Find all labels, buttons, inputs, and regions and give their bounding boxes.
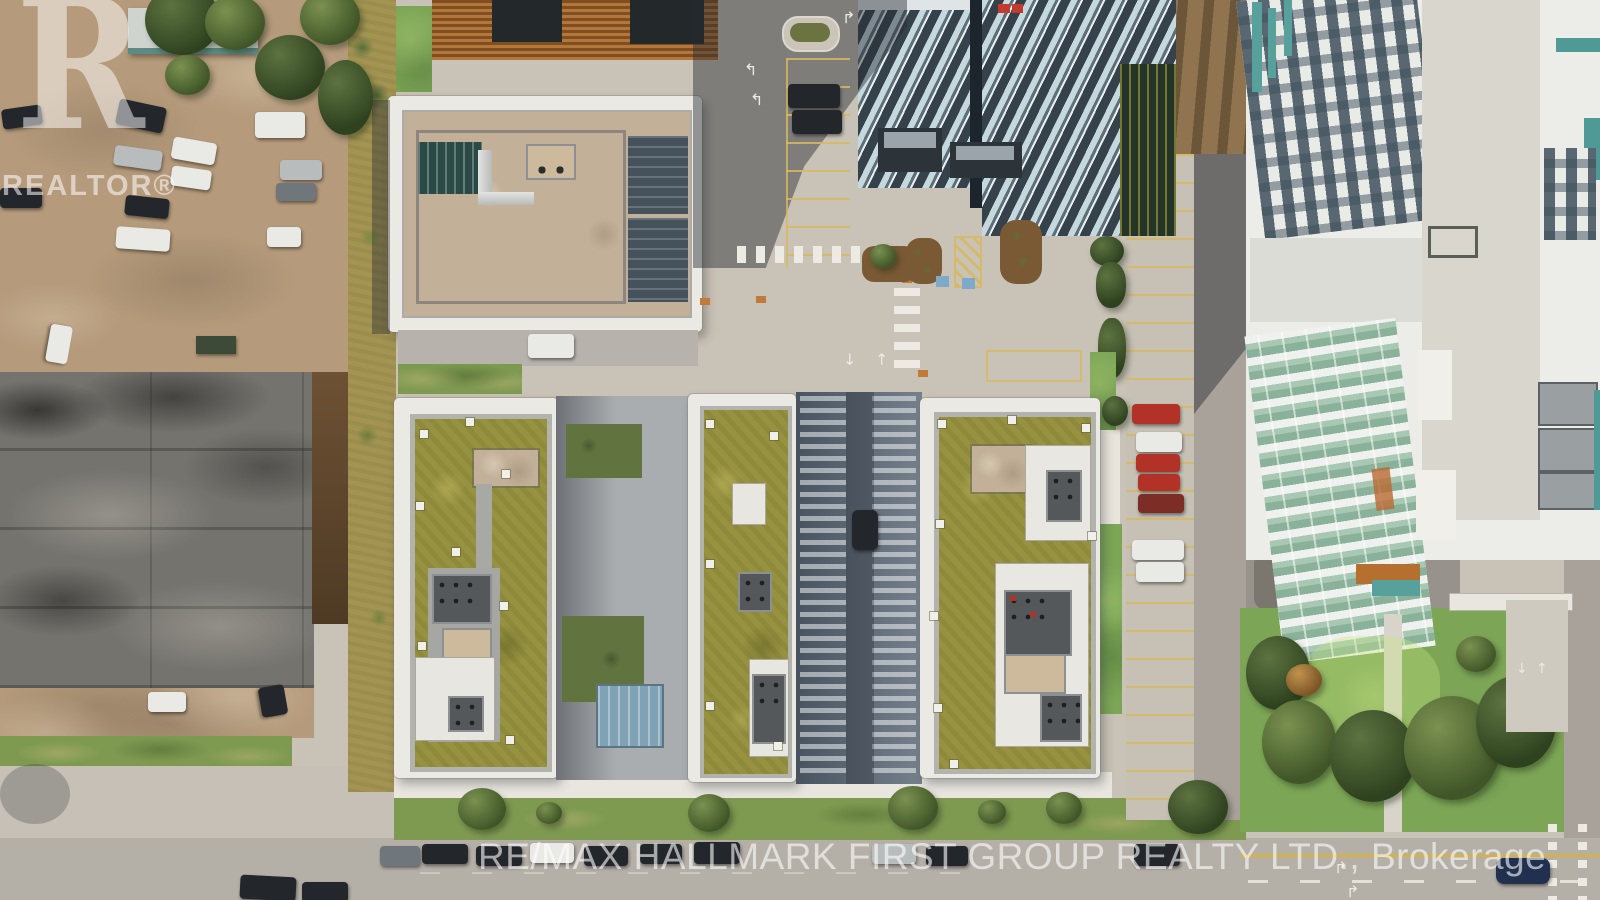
- tree: [1102, 396, 1128, 426]
- tree: [318, 60, 373, 135]
- roof-vent: [500, 602, 508, 610]
- gravel-roof-notch: [474, 450, 538, 486]
- hvac-units: [1006, 592, 1070, 654]
- dark-roof-box: [630, 0, 704, 44]
- teal-rooftop-pipes: [1284, 0, 1292, 56]
- car: [792, 110, 842, 134]
- tree: [458, 788, 506, 830]
- hvac-cluster-teal: [418, 142, 482, 194]
- silver-duct-horizontal: [478, 192, 534, 205]
- rooftop-unit-beige: [444, 630, 490, 660]
- rooftop-terrace: [1422, 0, 1540, 520]
- aerial-photo: ↰ ↰ ↱ ↓ ↑: [0, 0, 1600, 900]
- red-pipe-accent: [1010, 596, 1016, 601]
- car: [1136, 432, 1182, 452]
- gravel-roof-notch: [972, 446, 1030, 492]
- dark-green-glass-building: [1120, 64, 1176, 236]
- tactile-curb-plate: [700, 298, 710, 305]
- roof-vent: [416, 502, 424, 510]
- roof-vent: [770, 432, 778, 440]
- courtyard-garden: [566, 424, 642, 478]
- van: [528, 334, 574, 358]
- accessible-parking-mark: [936, 276, 949, 287]
- teal-pipe-run: [1594, 390, 1600, 510]
- car: [1138, 494, 1184, 513]
- laneway-centre: [846, 392, 874, 784]
- roof-vent: [466, 418, 474, 426]
- rooftop-mechanical-unit: [1540, 384, 1596, 424]
- car: [422, 844, 468, 864]
- rooftop-equipment-red: [1012, 4, 1023, 13]
- tree: [1096, 262, 1126, 308]
- planting-bed: [398, 364, 522, 394]
- tree: [1262, 700, 1336, 784]
- roof-vent: [1082, 424, 1090, 432]
- roof-vent: [930, 612, 938, 620]
- industrial-building-roof: [0, 372, 314, 690]
- canopy-roof: [956, 146, 1014, 160]
- tree: [1456, 636, 1496, 672]
- car: [380, 846, 420, 866]
- hvac-units: [740, 574, 770, 610]
- car: [148, 692, 186, 712]
- tree: [1330, 710, 1416, 802]
- teal-canopy: [1372, 580, 1420, 596]
- tree: [1286, 664, 1322, 696]
- grass-boulevard: [394, 798, 1246, 840]
- realtor-watermark-text: REALTOR®: [2, 170, 177, 203]
- bike-lane-arrow: ↓: [1516, 662, 1528, 676]
- roof-vent: [706, 702, 714, 710]
- car: [852, 510, 878, 550]
- teal-rooftop-pipes: [1252, 2, 1262, 92]
- road-arrow-marking: ↑: [875, 352, 888, 368]
- rooftop-mechanical-unit: [1540, 474, 1596, 508]
- pickup-truck: [1132, 404, 1180, 424]
- hvac-units: [450, 698, 482, 730]
- car: [276, 183, 316, 201]
- glass-canopy: [598, 686, 662, 746]
- roof-vent: [502, 470, 510, 478]
- hvac-units: [1042, 696, 1080, 740]
- silver-duct-vertical: [478, 150, 492, 198]
- roof-vent: [1088, 532, 1096, 540]
- balcony-rows: [872, 396, 916, 780]
- roof-walkway: [476, 484, 492, 570]
- roof-vent: [950, 760, 958, 768]
- tactile-curb-plate: [918, 370, 928, 377]
- canopy-roof: [884, 132, 936, 148]
- building-shadow-west: [372, 100, 390, 334]
- roof-vent: [420, 430, 428, 438]
- dark-glass-roof-section: [628, 136, 688, 214]
- teal-roof-strip: [1556, 38, 1600, 52]
- red-pipe-accent: [1030, 612, 1036, 617]
- car: [258, 684, 289, 718]
- tactile-curb-plate: [756, 296, 766, 303]
- balcony-rows: [800, 396, 846, 780]
- road-arrow-marking: ↓: [843, 352, 856, 368]
- van: [115, 226, 170, 252]
- car: [280, 160, 322, 180]
- realtor-logo-icon: R: [16, 0, 145, 144]
- tree: [978, 800, 1006, 824]
- side-street-right: [1564, 520, 1600, 838]
- road-arrow-marking: ↱: [1346, 884, 1359, 900]
- car: [1138, 474, 1180, 491]
- accessible-parking-mark: [962, 278, 975, 289]
- tree: [888, 786, 938, 830]
- roof-terrace-path: [1250, 238, 1422, 322]
- rooftop-structure: [1416, 470, 1456, 540]
- tree: [536, 802, 562, 824]
- brokerage-watermark-text: RE/MAX HALLMARK FIRST GROUP REALTY LTD.,…: [478, 836, 1546, 878]
- tree: [165, 55, 210, 95]
- roof-vent: [418, 642, 426, 650]
- rooftop-unit-beige: [528, 146, 574, 178]
- roof-vent: [938, 420, 946, 428]
- ladder-crosswalk: [1578, 824, 1587, 900]
- road-arrow-marking: ↰: [750, 92, 763, 108]
- teal-rooftop-pipes: [1268, 8, 1276, 78]
- dark-glass-roof-section: [628, 218, 688, 302]
- dumpster: [196, 336, 236, 354]
- roof-vent: [934, 704, 942, 712]
- tree-shadow: [0, 764, 70, 824]
- dark-roof-box: [492, 0, 562, 42]
- hvac-units: [754, 676, 784, 742]
- road-arrow-marking: ↱: [842, 10, 855, 26]
- roof-vent: [506, 736, 514, 744]
- rooftop-mechanical-unit: [1540, 430, 1596, 470]
- tree: [1168, 780, 1228, 834]
- car: [788, 84, 840, 108]
- tree: [688, 794, 730, 832]
- yellow-boxed-zone: [986, 350, 1082, 382]
- car: [1136, 454, 1180, 472]
- car: [239, 875, 296, 900]
- car: [1132, 540, 1184, 560]
- rooftop-unit-beige: [1006, 656, 1064, 692]
- car: [1136, 562, 1184, 582]
- car: [302, 882, 348, 900]
- hvac-units: [1048, 472, 1080, 520]
- island-shrubs: [790, 23, 830, 42]
- tree: [870, 244, 896, 268]
- roof-vent: [936, 520, 944, 528]
- penthouse-roof: [733, 484, 765, 524]
- bike-lane-arrow: ↑: [1536, 662, 1548, 676]
- roof-vent: [706, 560, 714, 568]
- zebra-crosswalk: [737, 246, 879, 263]
- ladder-crosswalk: [894, 288, 920, 374]
- window-rows-right-edge: [1544, 148, 1596, 240]
- box-truck: [255, 112, 305, 138]
- roof-vent: [452, 548, 460, 556]
- tree: [255, 35, 325, 100]
- rooftop-structure: [1418, 350, 1452, 420]
- lawn-patch: [396, 6, 432, 92]
- industrial-building-east-wall: [312, 372, 350, 624]
- hvac-units: [434, 576, 490, 622]
- roof-vent: [706, 420, 714, 428]
- road-arrow-marking: ↰: [744, 62, 757, 78]
- car: [267, 227, 301, 247]
- mulch-planting-island: [1000, 220, 1042, 284]
- rooftop-equipment-red: [998, 4, 1010, 13]
- roof-vent: [774, 742, 782, 750]
- terrace-pergola: [1428, 226, 1478, 258]
- tree: [1046, 792, 1082, 824]
- roof-vent: [1008, 416, 1016, 424]
